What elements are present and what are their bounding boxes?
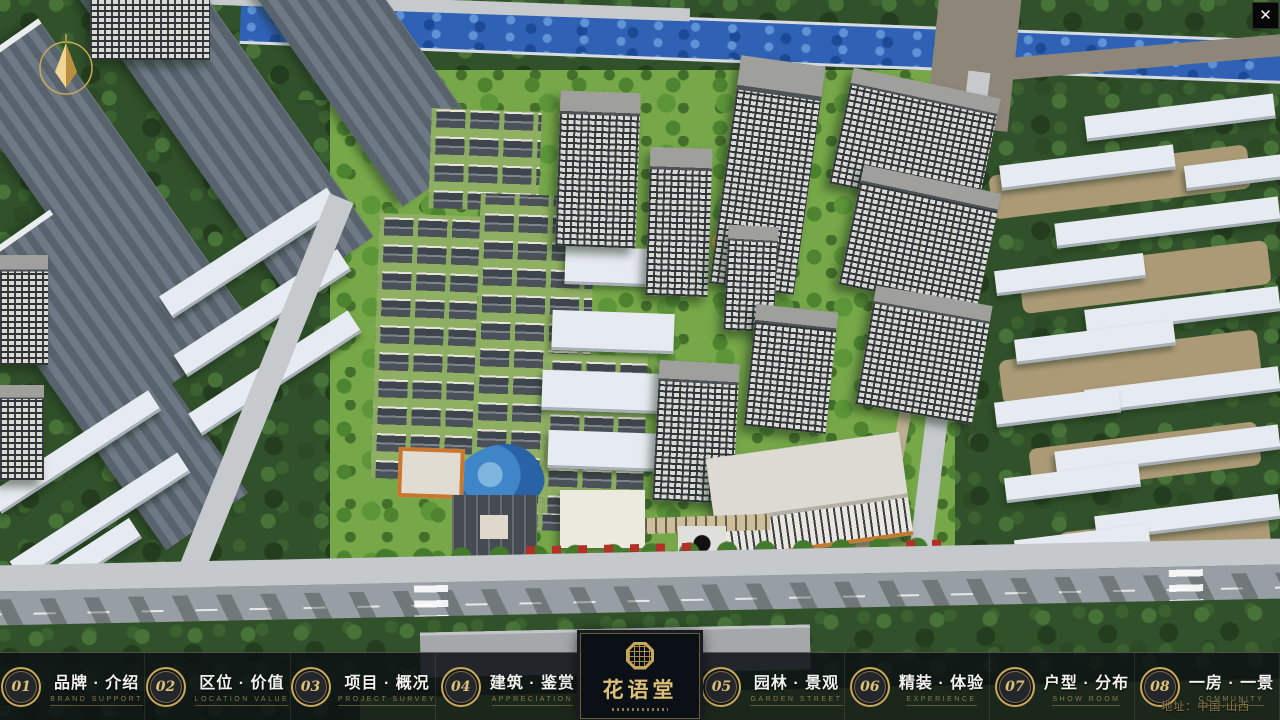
nav-item-garden[interactable]: 05 园林 · 景观 GARDEN STREET (700, 653, 844, 720)
brand-logo-panel[interactable]: 花语堂 (580, 633, 700, 719)
medal-05-icon: 05 (701, 667, 741, 707)
nav-text: 园林 · 景观 GARDEN STREET (750, 669, 842, 706)
nav-title: 品牌 · 介绍 (54, 669, 139, 693)
nav-subtitle: LOCATION VALUE (195, 696, 290, 706)
nav-group-left: 01 品牌 · 介绍 BRAND SUPPORT 02 区位 · 价值 LOCA… (0, 653, 580, 720)
nav-title: 户型 · 分布 (1044, 669, 1129, 693)
nav-item-architecture[interactable]: 04 建筑 · 鉴赏 APPRECIATION (435, 653, 580, 720)
nav-item-project[interactable]: 03 项目 · 概况 PROJECT SURVEY (290, 653, 435, 720)
residential-tower (855, 286, 992, 425)
masterplan-viewport[interactable]: ✕ 01 品牌 · 介绍 BRAND SUPPORT 02 区位 · 价值 LO… (0, 0, 1280, 720)
residential-tower (645, 147, 712, 297)
nav-title: 建筑 · 鉴赏 (490, 669, 575, 693)
nav-title: 一房 · 一景 (1189, 669, 1274, 693)
brand-logo-title: 花语堂 (603, 674, 678, 704)
nav-subtitle: BRAND SUPPORT (50, 696, 143, 706)
midrise-slab (551, 310, 674, 354)
nav-item-location[interactable]: 02 区位 · 价值 LOCATION VALUE (144, 653, 289, 720)
midrise-slab (547, 430, 670, 472)
nav-item-interior[interactable]: 06 精装 · 体验 EXPERIENCE (844, 653, 989, 720)
medal-02-icon: 02 (146, 667, 186, 707)
logo-tagline-rule (612, 708, 668, 711)
nav-text: 项目 · 概况 PROJECT SURVEY (340, 669, 435, 706)
pavilion-courtyard (480, 515, 508, 539)
city-tower (0, 385, 44, 480)
nav-title: 园林 · 景观 (754, 669, 839, 693)
nav-text: 精装 · 体验 EXPERIENCE (899, 669, 984, 706)
nav-item-floorplan[interactable]: 07 户型 · 分布 SHOW ROOM (989, 653, 1134, 720)
nav-text: 建筑 · 鉴赏 APPRECIATION (490, 669, 575, 706)
clubhouse (397, 447, 465, 499)
nav-subtitle: EXPERIENCE (906, 696, 976, 706)
medal-03-icon: 03 (291, 667, 331, 707)
city-tower (90, 0, 210, 60)
residential-tower (744, 304, 838, 434)
medal-06-icon: 06 (850, 667, 890, 707)
midrise-slab (541, 370, 670, 414)
nav-subtitle: GARDEN STREET (750, 696, 842, 706)
compass-icon (36, 34, 96, 98)
nav-subtitle: PROJECT SURVEY (338, 696, 436, 706)
nav-title: 精装 · 体验 (899, 669, 984, 693)
project-address: 地址：中国·山西 (1161, 698, 1250, 714)
nav-title: 项目 · 概况 (345, 669, 430, 693)
medal-01-icon: 01 (1, 667, 41, 707)
nav-title: 区位 · 价值 (199, 669, 284, 693)
bottom-navbar: 01 品牌 · 介绍 BRAND SUPPORT 02 区位 · 价值 LOCA… (0, 652, 1280, 720)
close-button[interactable]: ✕ (1252, 2, 1279, 29)
medal-04-icon: 04 (441, 667, 481, 707)
nav-text: 户型 · 分布 SHOW ROOM (1044, 669, 1129, 706)
nav-item-brand[interactable]: 01 品牌 · 介绍 BRAND SUPPORT (0, 653, 144, 720)
medal-07-icon: 07 (995, 667, 1035, 707)
residential-tower (555, 91, 640, 249)
nav-text: 品牌 · 介绍 BRAND SUPPORT (50, 669, 143, 706)
city-tower (0, 255, 48, 365)
seal-pattern (629, 645, 651, 667)
brand-seal-icon (626, 642, 654, 670)
nav-text: 区位 · 价值 LOCATION VALUE (195, 669, 290, 706)
nav-subtitle: APPRECIATION (492, 696, 574, 706)
nav-subtitle: SHOW ROOM (1052, 696, 1120, 706)
